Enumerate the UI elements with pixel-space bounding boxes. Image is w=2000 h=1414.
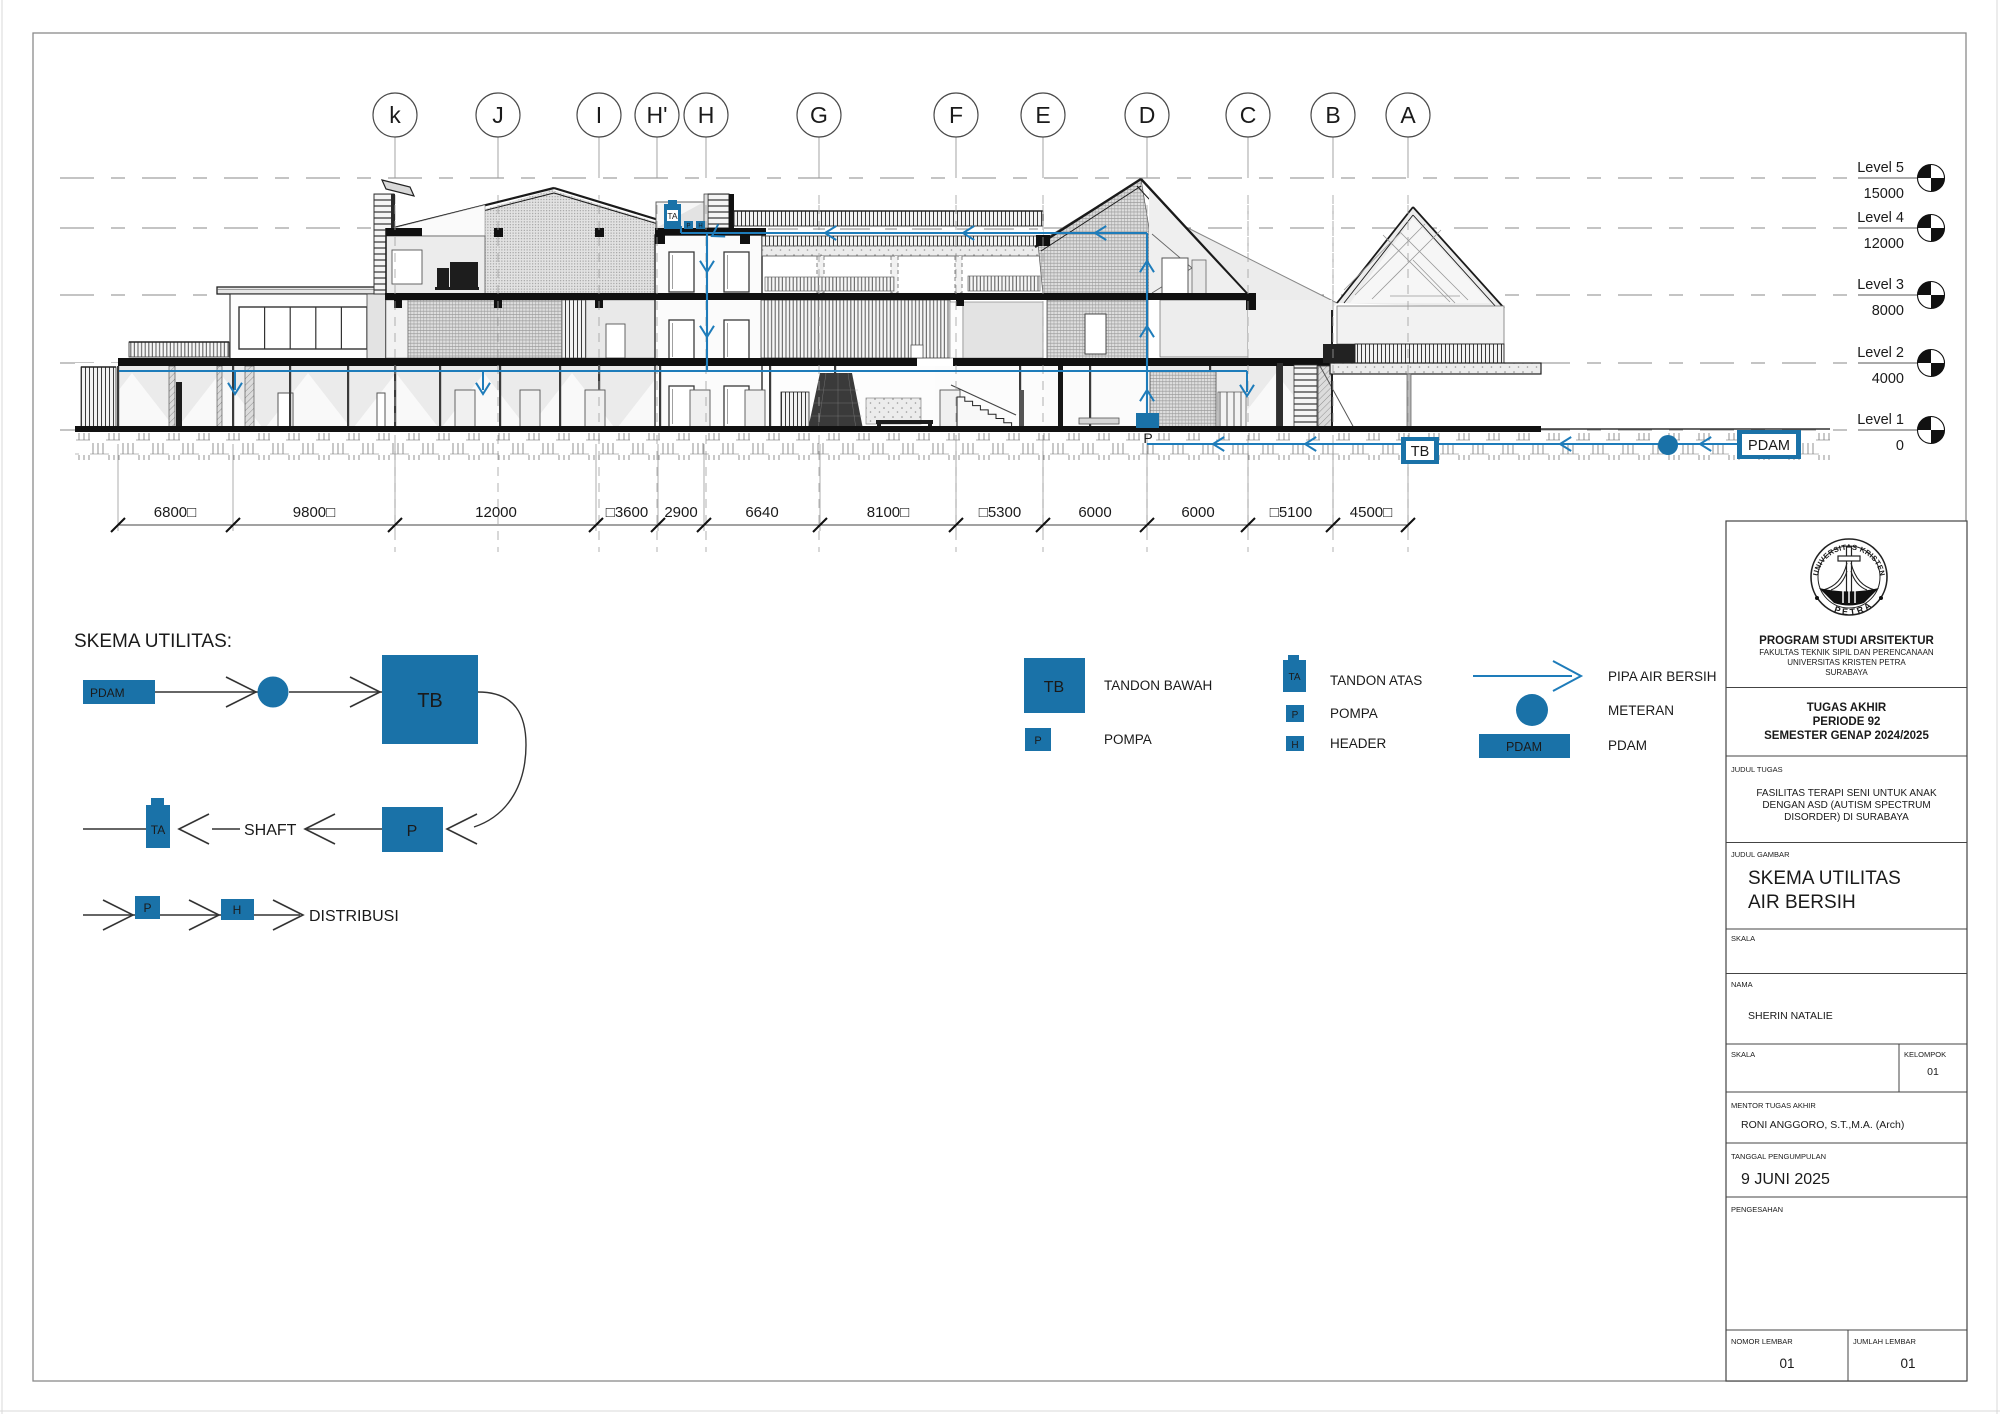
svg-text:□3600: □3600 bbox=[606, 504, 648, 521]
svg-text:TA: TA bbox=[1288, 672, 1300, 683]
svg-text:A: A bbox=[1400, 102, 1416, 128]
svg-text:SURABAYA: SURABAYA bbox=[1825, 668, 1868, 677]
svg-text:DISORDER) DI SURABAYA: DISORDER) DI SURABAYA bbox=[1784, 812, 1909, 823]
svg-text:P: P bbox=[1292, 710, 1299, 721]
svg-text:Level 4: Level 4 bbox=[1857, 210, 1904, 226]
svg-text:SKALA: SKALA bbox=[1731, 1050, 1755, 1059]
svg-text:AIR BERSIH: AIR BERSIH bbox=[1748, 892, 1856, 913]
svg-text:SHAFT: SHAFT bbox=[244, 822, 297, 839]
svg-text:JUMLAH LEMBAR: JUMLAH LEMBAR bbox=[1853, 1337, 1917, 1346]
svg-text:PIPA AIR BERSIH: PIPA AIR BERSIH bbox=[1608, 669, 1717, 684]
svg-text:UNIVERSITAS KRISTEN PETRA: UNIVERSITAS KRISTEN PETRA bbox=[1787, 658, 1906, 667]
svg-text:SEMESTER GENAP 2024/2025: SEMESTER GENAP 2024/2025 bbox=[1764, 730, 1929, 742]
svg-text:H: H bbox=[698, 102, 715, 128]
svg-text:C: C bbox=[1240, 102, 1257, 128]
svg-text:NOMOR LEMBAR: NOMOR LEMBAR bbox=[1731, 1337, 1793, 1346]
svg-text:FASILITAS TERAPI SENI UNTUK AN: FASILITAS TERAPI SENI UNTUK ANAK bbox=[1756, 788, 1937, 799]
svg-text:PENGESAHAN: PENGESAHAN bbox=[1731, 1205, 1783, 1214]
svg-text:15000: 15000 bbox=[1864, 186, 1904, 202]
svg-text:I: I bbox=[596, 102, 602, 128]
svg-text:01: 01 bbox=[1900, 1356, 1915, 1371]
svg-text:F: F bbox=[949, 102, 963, 128]
svg-text:PDAM: PDAM bbox=[1748, 438, 1790, 454]
svg-text:B: B bbox=[1325, 102, 1340, 128]
svg-text:TB: TB bbox=[1044, 679, 1064, 696]
svg-text:□5300: □5300 bbox=[979, 504, 1021, 521]
svg-text:Level 1: Level 1 bbox=[1857, 412, 1904, 428]
svg-text:P: P bbox=[686, 224, 690, 230]
svg-text:SKEMA UTILITAS:: SKEMA UTILITAS: bbox=[74, 631, 232, 652]
svg-text:TA: TA bbox=[151, 823, 165, 837]
svg-text:JUDUL GAMBAR: JUDUL GAMBAR bbox=[1731, 850, 1790, 859]
svg-text:9 JUNI 2025: 9 JUNI 2025 bbox=[1741, 1171, 1830, 1188]
svg-text:PDAM: PDAM bbox=[1506, 740, 1542, 754]
svg-text:TA: TA bbox=[667, 211, 678, 221]
svg-text:RONI ANGGORO, S.T.,M.A. (Arch): RONI ANGGORO, S.T.,M.A. (Arch) bbox=[1741, 1119, 1904, 1131]
svg-text:MENTOR TUGAS AKHIR: MENTOR TUGAS AKHIR bbox=[1731, 1101, 1816, 1110]
svg-text:PDAM: PDAM bbox=[90, 686, 125, 700]
svg-text:PDAM: PDAM bbox=[1608, 738, 1647, 753]
svg-text:TB: TB bbox=[1411, 444, 1430, 460]
svg-text:6640: 6640 bbox=[745, 504, 778, 521]
svg-text:JUDUL TUGAS: JUDUL TUGAS bbox=[1731, 765, 1783, 774]
svg-text:SKALA: SKALA bbox=[1731, 934, 1755, 943]
svg-text:P: P bbox=[143, 901, 151, 915]
svg-text:P: P bbox=[1034, 735, 1041, 747]
svg-text:6800□: 6800□ bbox=[154, 504, 196, 521]
svg-text:SHERIN NATALIE: SHERIN NATALIE bbox=[1748, 1010, 1833, 1022]
svg-text:Level 5: Level 5 bbox=[1857, 160, 1904, 176]
svg-text:POMPA: POMPA bbox=[1104, 732, 1152, 747]
svg-text:METERAN: METERAN bbox=[1608, 703, 1674, 718]
svg-text:DISTRIBUSI: DISTRIBUSI bbox=[309, 908, 399, 925]
svg-text:D: D bbox=[1139, 102, 1156, 128]
svg-text:PROGRAM STUDI ARSITEKTUR: PROGRAM STUDI ARSITEKTUR bbox=[1759, 635, 1934, 647]
svg-text:FAKULTAS TEKNIK SIPIL DAN PERE: FAKULTAS TEKNIK SIPIL DAN PERENCANAAN bbox=[1759, 648, 1934, 657]
svg-text:E: E bbox=[1035, 102, 1050, 128]
svg-text:0: 0 bbox=[1896, 438, 1904, 454]
svg-text:SKEMA UTILITAS: SKEMA UTILITAS bbox=[1748, 868, 1901, 889]
svg-text:6000: 6000 bbox=[1181, 504, 1214, 521]
svg-text:01: 01 bbox=[1779, 1356, 1794, 1371]
svg-text:DENGAN ASD (AUTISM SPECTRUM: DENGAN ASD (AUTISM SPECTRUM bbox=[1762, 800, 1930, 811]
svg-text:J: J bbox=[492, 102, 504, 128]
svg-text:KELOMPOK: KELOMPOK bbox=[1904, 1050, 1946, 1059]
svg-text:Level 3: Level 3 bbox=[1857, 277, 1904, 293]
svg-text:P: P bbox=[1143, 430, 1152, 446]
svg-text:TANDON BAWAH: TANDON BAWAH bbox=[1104, 678, 1212, 693]
svg-text:PERIODE 92: PERIODE 92 bbox=[1813, 716, 1881, 728]
svg-text:8000: 8000 bbox=[1872, 303, 1904, 319]
svg-text:P: P bbox=[407, 823, 418, 840]
svg-text:2900: 2900 bbox=[664, 504, 697, 521]
svg-text:□5100: □5100 bbox=[1270, 504, 1312, 521]
svg-text:H: H bbox=[1291, 740, 1298, 751]
svg-text:TANGGAL PENGUMPULAN: TANGGAL PENGUMPULAN bbox=[1731, 1152, 1826, 1161]
svg-text:12000: 12000 bbox=[1864, 236, 1904, 252]
svg-text:12000: 12000 bbox=[475, 504, 517, 521]
svg-text:8100□: 8100□ bbox=[867, 504, 909, 521]
svg-text:H': H' bbox=[646, 102, 667, 128]
svg-text:H: H bbox=[698, 224, 702, 230]
svg-text:TB: TB bbox=[417, 690, 443, 712]
svg-text:POMPA: POMPA bbox=[1330, 706, 1378, 721]
svg-text:4500□: 4500□ bbox=[1350, 504, 1392, 521]
svg-text:H: H bbox=[233, 903, 242, 917]
svg-text:6000: 6000 bbox=[1078, 504, 1111, 521]
svg-text:TUGAS AKHIR: TUGAS AKHIR bbox=[1807, 702, 1887, 714]
svg-text:G: G bbox=[810, 102, 828, 128]
svg-text:9800□: 9800□ bbox=[293, 504, 335, 521]
svg-text:k: k bbox=[389, 102, 401, 128]
svg-text:01: 01 bbox=[1927, 1066, 1939, 1078]
svg-text:HEADER: HEADER bbox=[1330, 736, 1387, 751]
svg-text:Level 2: Level 2 bbox=[1857, 345, 1904, 361]
svg-text:4000: 4000 bbox=[1872, 371, 1904, 387]
svg-text:TANDON ATAS: TANDON ATAS bbox=[1330, 673, 1422, 688]
svg-text:NAMA: NAMA bbox=[1731, 980, 1753, 989]
